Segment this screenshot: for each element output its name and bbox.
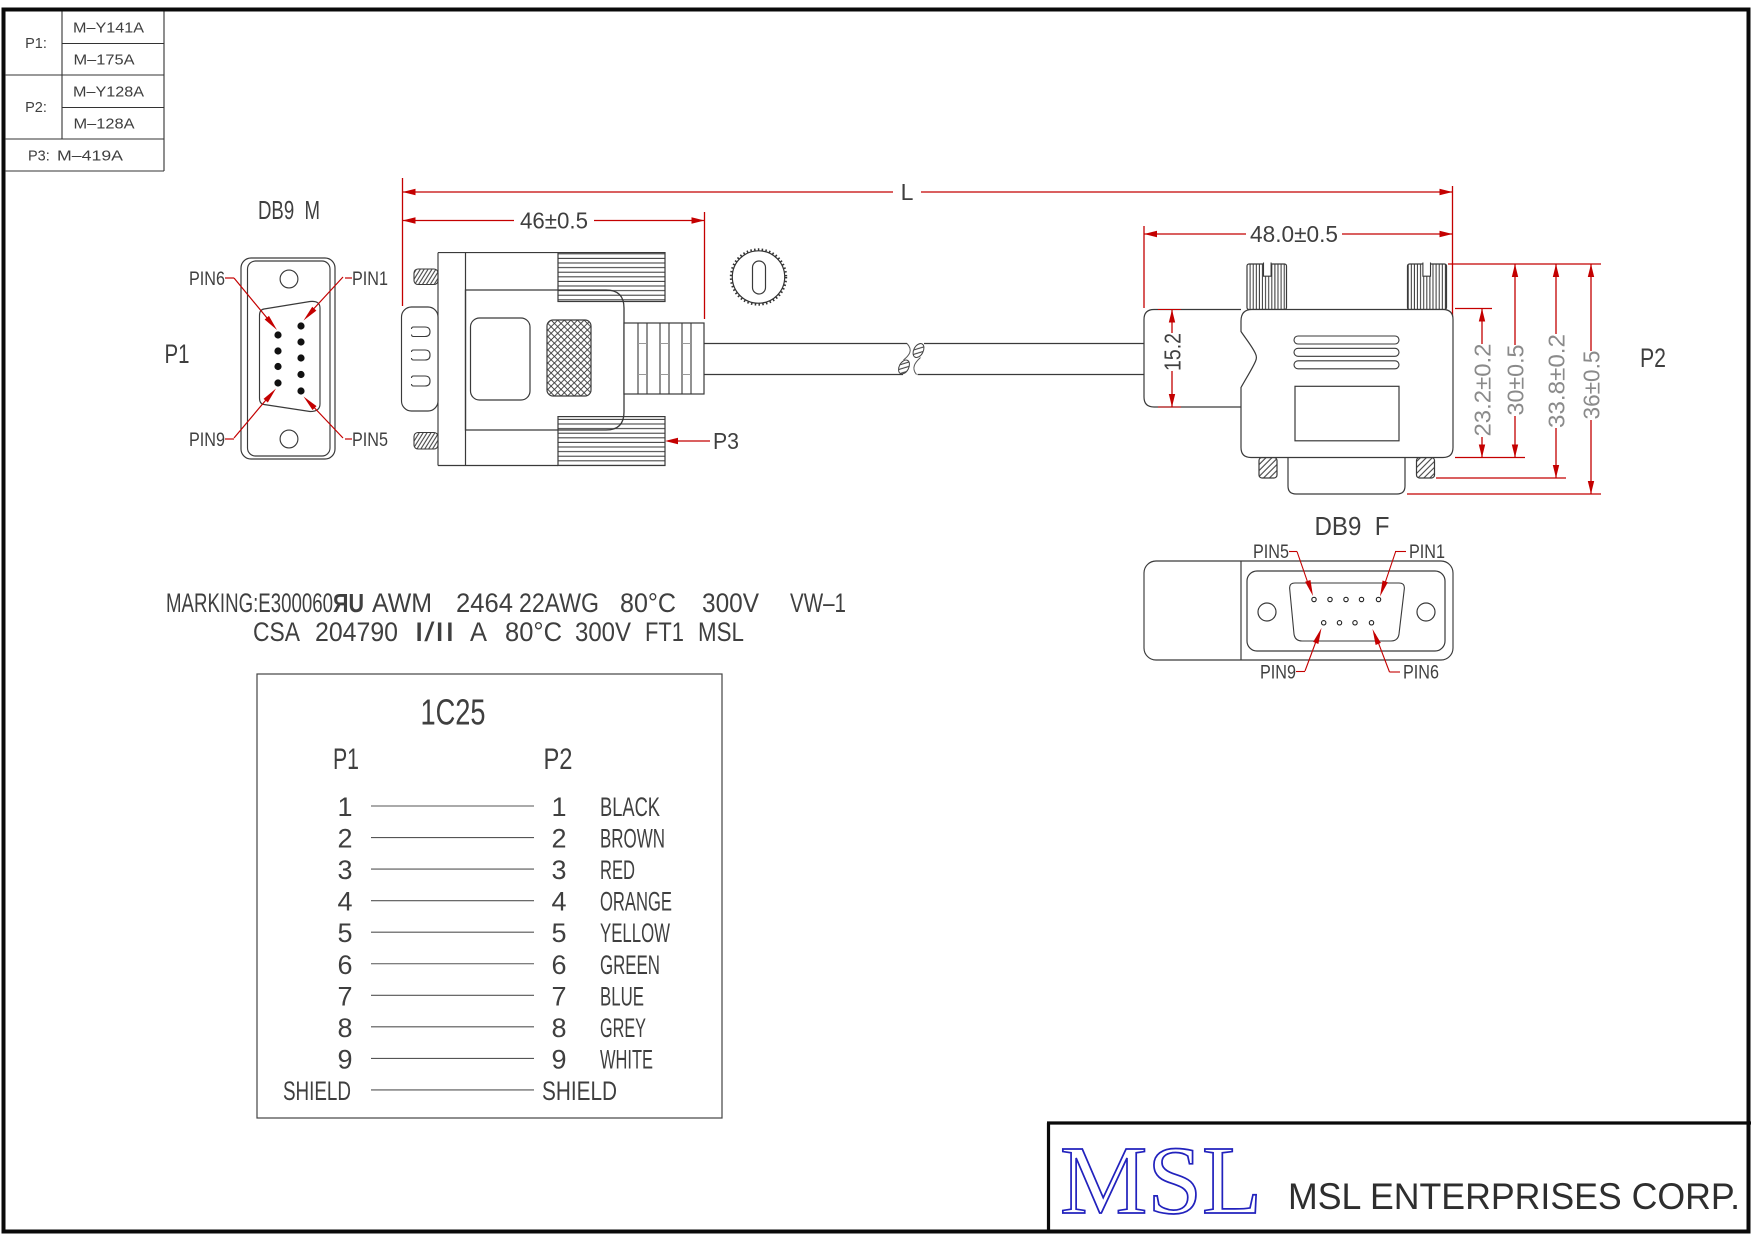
svg-text:3: 3: [551, 855, 566, 885]
svg-text:P2: P2: [544, 743, 573, 776]
svg-text:23.2±0.2: 23.2±0.2: [1469, 344, 1495, 437]
svg-text:L: L: [901, 179, 914, 205]
svg-text:P2:: P2:: [25, 100, 47, 116]
svg-text:FT1: FT1: [645, 617, 684, 647]
svg-text:30±0.5: 30±0.5: [1502, 345, 1528, 416]
svg-text:MARKING:E300060: MARKING:E300060: [166, 588, 333, 618]
svg-text:1: 1: [551, 792, 566, 822]
svg-text:A: A: [470, 617, 487, 647]
svg-text:300V: 300V: [702, 588, 759, 618]
svg-text:PIN6: PIN6: [189, 268, 225, 290]
svg-text:6: 6: [337, 950, 352, 980]
svg-text:2: 2: [337, 824, 352, 854]
svg-text:P2: P2: [1640, 343, 1666, 373]
svg-text:5: 5: [337, 918, 352, 948]
svg-text:GREEN: GREEN: [600, 950, 660, 980]
svg-text:48.0±0.5: 48.0±0.5: [1250, 221, 1338, 247]
svg-text:15.2: 15.2: [1159, 333, 1185, 371]
svg-text:3: 3: [337, 855, 352, 885]
svg-text:CSA: CSA: [253, 617, 300, 647]
svg-text:BLACK: BLACK: [600, 792, 660, 822]
svg-text:2464: 2464: [456, 588, 513, 618]
svg-text:36±0.5: 36±0.5: [1578, 351, 1604, 420]
svg-text:MSL: MSL: [698, 617, 744, 647]
svg-text:1C25: 1C25: [421, 692, 486, 733]
svg-text:SHIELD: SHIELD: [283, 1076, 351, 1106]
svg-text:7: 7: [337, 981, 352, 1011]
svg-text:204790: 204790: [315, 617, 398, 647]
svg-text:1: 1: [337, 792, 352, 822]
svg-text:P1:: P1:: [25, 36, 47, 52]
svg-text:M–Y128A: M–Y128A: [73, 85, 144, 101]
svg-text:PIN1: PIN1: [1409, 541, 1445, 563]
svg-text:I/II: I/II: [414, 617, 455, 647]
svg-text:5: 5: [551, 918, 566, 948]
svg-text:46±0.5: 46±0.5: [520, 208, 588, 234]
svg-text:22AWG: 22AWG: [519, 588, 599, 618]
svg-text:MSL ENTERPRISES CORP.: MSL ENTERPRISES CORP.: [1288, 1176, 1740, 1217]
svg-text:4: 4: [551, 887, 566, 917]
svg-text:ORANGE: ORANGE: [600, 887, 672, 917]
svg-text:7: 7: [551, 981, 566, 1011]
svg-text:80°C: 80°C: [620, 588, 676, 618]
svg-text:M–128A: M–128A: [74, 117, 135, 133]
svg-text:M–419A: M–419A: [57, 149, 123, 165]
svg-text:ЯU: ЯU: [333, 588, 364, 618]
svg-text:P3: P3: [713, 428, 739, 454]
svg-text:P1: P1: [165, 339, 190, 369]
svg-text:DB9 F: DB9 F: [1315, 511, 1390, 541]
svg-text:YELLOW: YELLOW: [600, 918, 670, 948]
svg-text:GREY: GREY: [600, 1013, 646, 1043]
svg-text:8: 8: [337, 1013, 352, 1043]
svg-text:PIN6: PIN6: [1403, 662, 1439, 684]
svg-text:4: 4: [337, 887, 352, 917]
svg-text:RED: RED: [600, 855, 635, 885]
svg-text:PIN9: PIN9: [189, 429, 225, 451]
svg-text:33.8±0.2: 33.8±0.2: [1543, 334, 1569, 428]
svg-text:PIN1: PIN1: [352, 268, 388, 290]
svg-text:VW–1: VW–1: [790, 588, 846, 618]
svg-text:PIN5: PIN5: [1253, 541, 1289, 563]
svg-text:MSL: MSL: [1060, 1127, 1262, 1234]
svg-text:BROWN: BROWN: [600, 824, 665, 854]
svg-text:BLUE: BLUE: [600, 981, 644, 1011]
svg-text:PIN5: PIN5: [352, 429, 388, 451]
svg-text:M–175A: M–175A: [74, 53, 135, 69]
svg-text:P1: P1: [333, 743, 359, 776]
svg-text:6: 6: [551, 950, 566, 980]
svg-text:9: 9: [337, 1044, 352, 1074]
svg-text:AWM: AWM: [372, 588, 432, 618]
svg-text:8: 8: [551, 1013, 566, 1043]
svg-text:2: 2: [551, 824, 566, 854]
svg-text:M–Y141A: M–Y141A: [73, 21, 144, 37]
svg-text:WHITE: WHITE: [600, 1044, 653, 1074]
svg-text:P3:: P3:: [28, 149, 50, 165]
svg-text:80°C: 80°C: [505, 617, 562, 647]
svg-text:300V: 300V: [575, 617, 631, 647]
svg-text:9: 9: [551, 1044, 566, 1074]
svg-text:PIN9: PIN9: [1260, 662, 1296, 684]
svg-text:SHIELD: SHIELD: [542, 1076, 617, 1106]
svg-text:DB9 M: DB9 M: [258, 195, 320, 225]
